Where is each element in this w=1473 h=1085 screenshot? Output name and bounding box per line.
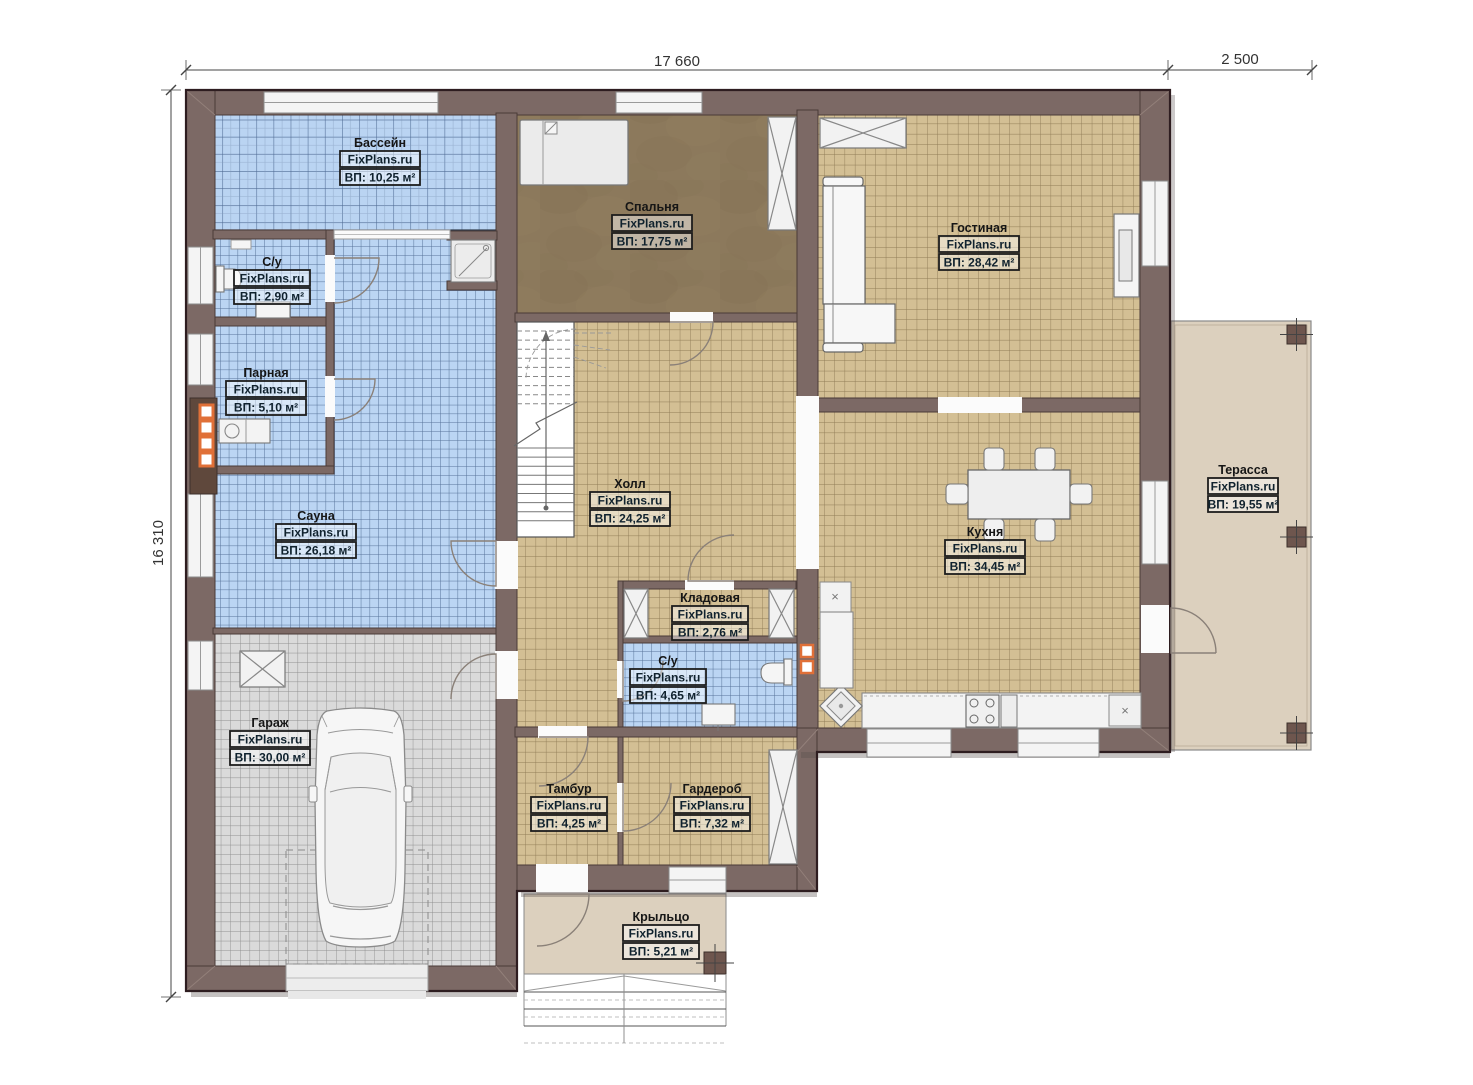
svg-text:Холл: Холл: [614, 477, 645, 491]
svg-text:FixPlans.ru: FixPlans.ru: [348, 153, 413, 167]
svg-text:ВП: 7,32 м²: ВП: 7,32 м²: [680, 817, 744, 831]
svg-text:Тамбур: Тамбур: [546, 782, 592, 796]
svg-text:ВП: 2,90 м²: ВП: 2,90 м²: [240, 290, 304, 304]
svg-text:FixPlans.ru: FixPlans.ru: [240, 272, 305, 286]
svg-text:ВП: 4,65 м²: ВП: 4,65 м²: [636, 689, 700, 703]
svg-text:FixPlans.ru: FixPlans.ru: [537, 799, 602, 813]
svg-text:FixPlans.ru: FixPlans.ru: [238, 733, 303, 747]
svg-text:ВП: 19,55 м²: ВП: 19,55 м²: [1208, 498, 1279, 512]
svg-text:Гараж: Гараж: [251, 716, 288, 730]
svg-text:ВП: 28,42 м²: ВП: 28,42 м²: [944, 256, 1015, 270]
svg-text:С/у: С/у: [262, 255, 282, 269]
svg-text:FixPlans.ru: FixPlans.ru: [598, 494, 663, 508]
svg-text:FixPlans.ru: FixPlans.ru: [620, 217, 685, 231]
svg-text:16 310: 16 310: [150, 520, 167, 566]
svg-text:ВП: 26,18 м²: ВП: 26,18 м²: [281, 544, 352, 558]
svg-text:Гостиная: Гостиная: [951, 221, 1008, 235]
svg-text:FixPlans.ru: FixPlans.ru: [947, 238, 1012, 252]
svg-text:ВП: 10,25 м²: ВП: 10,25 м²: [345, 171, 416, 185]
svg-text:ВП: 2,76 м²: ВП: 2,76 м²: [678, 626, 742, 640]
svg-text:Парная: Парная: [243, 366, 288, 380]
svg-text:×: ×: [1121, 703, 1129, 718]
svg-text:ВП: 17,75 м²: ВП: 17,75 м²: [617, 235, 688, 249]
svg-text:ВП: 34,45 м²: ВП: 34,45 м²: [950, 560, 1021, 574]
svg-text:Сауна: Сауна: [297, 509, 336, 523]
svg-text:FixPlans.ru: FixPlans.ru: [678, 608, 743, 622]
svg-text:FixPlans.ru: FixPlans.ru: [953, 542, 1018, 556]
svg-text:×: ×: [831, 589, 839, 604]
svg-text:ВП: 5,21 м²: ВП: 5,21 м²: [629, 945, 693, 959]
svg-text:FixPlans.ru: FixPlans.ru: [636, 671, 701, 685]
svg-text:ВП: 5,10 м²: ВП: 5,10 м²: [234, 401, 298, 415]
svg-text:Кладовая: Кладовая: [680, 591, 740, 605]
svg-text:FixPlans.ru: FixPlans.ru: [1211, 480, 1276, 494]
svg-text:ВП: 30,00 м²: ВП: 30,00 м²: [235, 751, 306, 765]
svg-text:Крыльцо: Крыльцо: [633, 910, 690, 924]
svg-text:Спальня: Спальня: [625, 200, 679, 214]
svg-text:С/у: С/у: [658, 654, 678, 668]
svg-text:ВП: 4,25 м²: ВП: 4,25 м²: [537, 817, 601, 831]
svg-text:Кухня: Кухня: [967, 525, 1004, 539]
svg-text:Гардероб: Гардероб: [682, 782, 741, 796]
svg-text:Бассейн: Бассейн: [354, 136, 406, 150]
svg-text:2 500: 2 500: [1221, 51, 1259, 68]
svg-text:17 660: 17 660: [654, 53, 700, 70]
svg-text:Терасса: Терасса: [1218, 463, 1269, 477]
svg-text:FixPlans.ru: FixPlans.ru: [629, 927, 694, 941]
svg-text:FixPlans.ru: FixPlans.ru: [284, 526, 349, 540]
svg-text:FixPlans.ru: FixPlans.ru: [680, 799, 745, 813]
svg-text:ВП: 24,25 м²: ВП: 24,25 м²: [595, 512, 666, 526]
svg-text:FixPlans.ru: FixPlans.ru: [234, 383, 299, 397]
